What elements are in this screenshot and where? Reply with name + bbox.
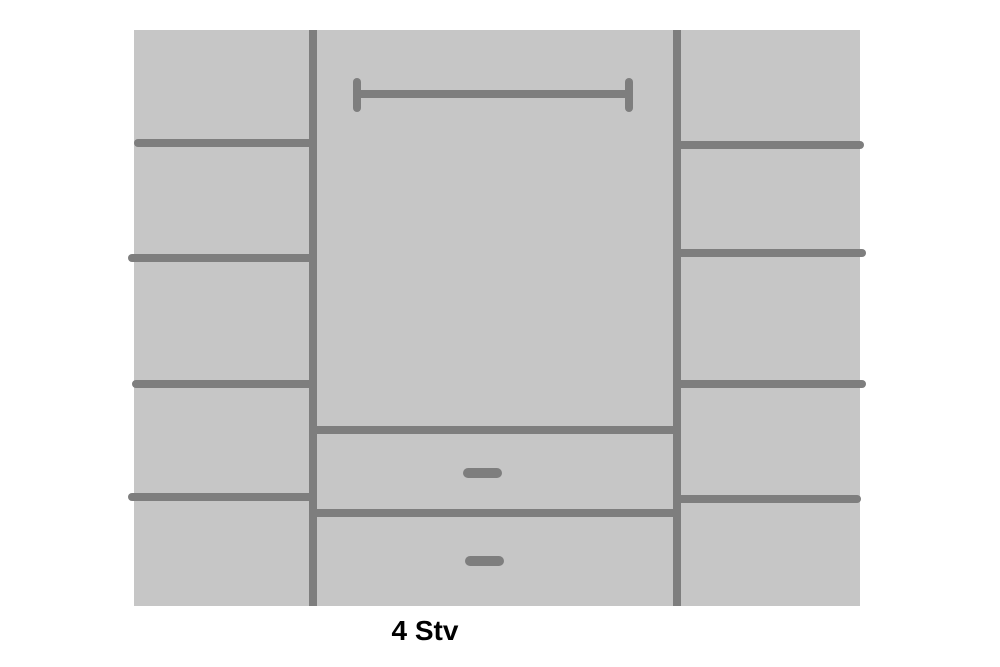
wardrobe-label: 4 Stv: [360, 615, 490, 647]
drawer-handle-1: [463, 468, 502, 478]
wardrobe-body: [134, 30, 860, 606]
drawer-divider-top: [312, 426, 677, 434]
hanging-rail-bar: [353, 90, 633, 98]
right-shelf-line-2: [677, 249, 866, 257]
left-partition-divider: [309, 30, 317, 606]
left-shelf-line-3: [132, 380, 314, 388]
hanging-rail-end-cap-right: [625, 78, 633, 112]
right-shelf-line-3: [677, 380, 866, 388]
left-shelf-line-2: [128, 254, 314, 262]
left-shelf-line-1: [134, 139, 314, 147]
page: 4 Stv: [0, 0, 1000, 667]
right-shelf-line-4: [677, 495, 861, 503]
drawer-divider-middle: [312, 509, 677, 517]
left-shelf-line-4: [128, 493, 314, 501]
drawer-handle-2: [465, 556, 504, 566]
right-partition-divider: [673, 30, 681, 606]
hanging-rail-end-cap-left: [353, 78, 361, 112]
right-shelf-line-1: [677, 141, 864, 149]
